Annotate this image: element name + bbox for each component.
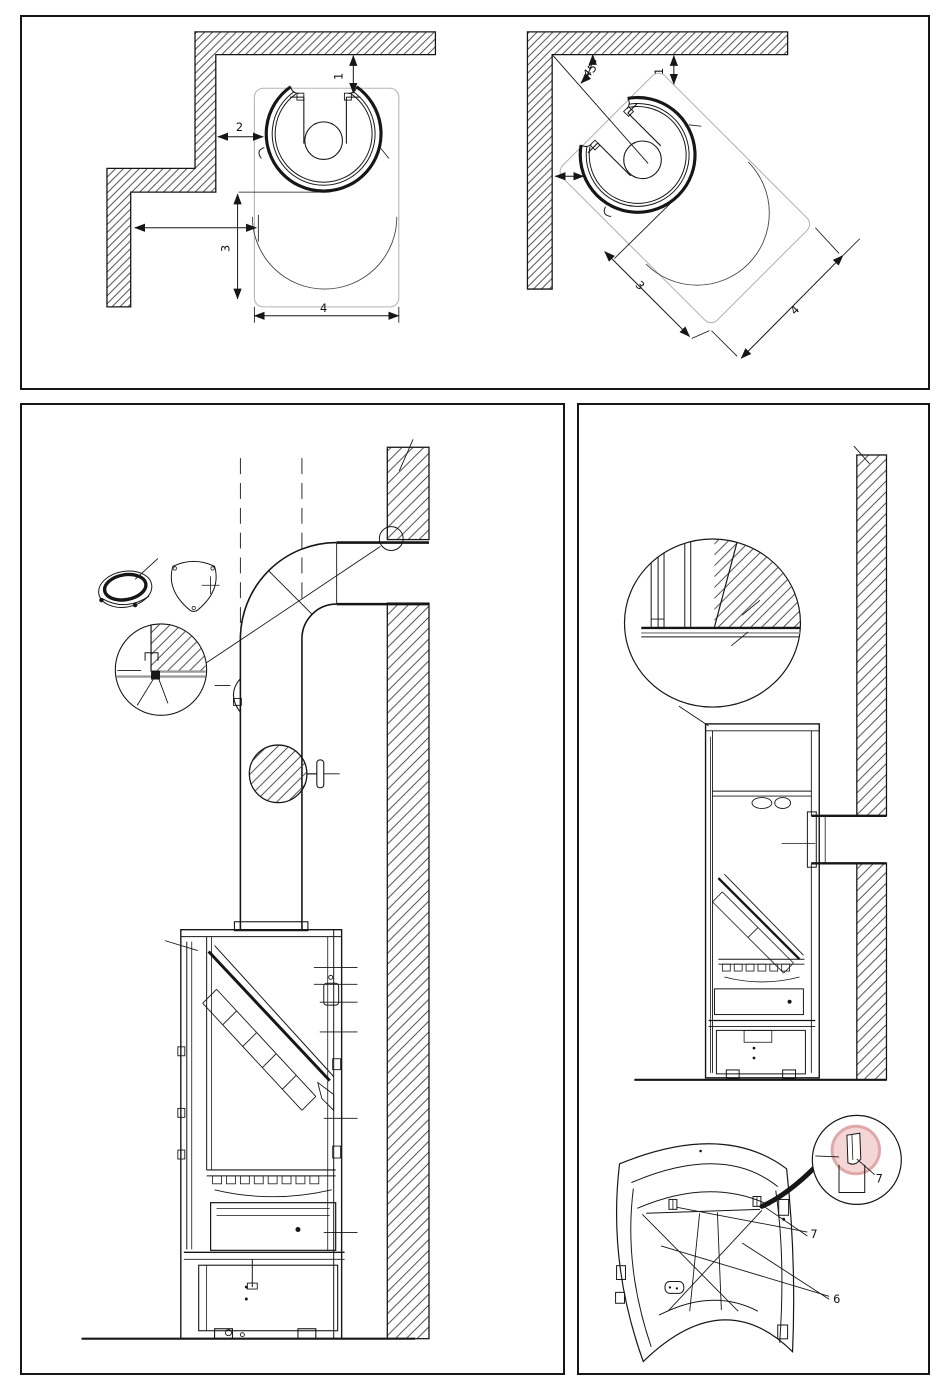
outlet-hole [775,798,791,809]
dimension-plate-width: 4 [254,301,398,323]
ash-pan [211,1203,336,1251]
callout-label-7-detail: 7 [876,1172,883,1186]
panel-side-section [20,403,565,1375]
air-intake-bump [233,679,240,713]
outlet-hole [752,798,772,809]
dimension-left-wall [135,215,259,242]
rear-connection-drawing: 7 6 7 [579,405,928,1373]
dim-label-3-corner: 3 [633,278,648,293]
plinth-cabinet [716,1030,805,1074]
dim-label-2: 2 [236,120,243,134]
damper-assembly [249,745,339,803]
dimension-front-clearance-corner: 3 [605,198,710,338]
clearance-plans-drawing: 1 2 3 4 [22,17,928,388]
dim-label-1: 1 [331,73,345,80]
plan-view-straight: 1 2 3 4 [107,32,435,323]
dim-label-3: 3 [219,245,233,252]
cover-plate-icon [171,561,219,611]
side-section-drawing [22,405,563,1373]
ash-pan-knob [295,1227,300,1232]
rear-wall [854,446,887,1080]
door-inside-view [616,1144,830,1362]
callout-label-7: 7 [810,1227,817,1241]
stove-axis-line [552,55,648,164]
dimension-rear-clearance-corner: 1 [652,56,674,85]
chimney-wall [387,439,429,1338]
clip-detail-circle: 7 [812,1115,901,1204]
plinth-cabinet [199,1265,338,1331]
seal-block [151,671,160,680]
dim-label-4: 4 [320,301,327,315]
dimension-side-clearance: 2 [218,120,264,137]
grate [718,959,804,982]
dimension-rear-clearance: 1 [331,56,353,94]
callout-leader-ticks [165,941,358,1233]
plan-view-corner: 45° 1 3 4 [527,32,859,358]
detail-leader-line [679,706,709,726]
angle-label-45: 45° [580,57,604,81]
grate [207,1170,336,1197]
dimension-plate-width-corner: 4 [711,228,859,359]
damper-handle [317,760,324,788]
damper-disc [249,745,307,803]
baffle-plate [718,878,799,959]
stove-plan-rotated [554,69,813,328]
top-connection-detail-ellipse [624,538,804,726]
wall-fixing-detail-circle [115,624,206,715]
rear-flue-pipe [782,812,887,867]
dim-label-1-corner: 1 [652,68,666,75]
panel-rear-connection: 7 6 7 [577,403,930,1375]
stove-plan-straight [252,87,398,307]
panel-clearance-plans: 1 2 3 4 [20,15,930,390]
angle-annotation: 45° [580,55,604,84]
door-outer-shell [617,1144,794,1362]
clamp-ring-icon [96,558,158,611]
installation-manual-page: 1 2 3 4 [0,0,950,1392]
door-hinge [616,1292,625,1303]
callout-label-6: 6 [833,1292,840,1306]
dimension-front-clearance: 3 [219,192,323,299]
stove-side-section [178,930,345,1339]
